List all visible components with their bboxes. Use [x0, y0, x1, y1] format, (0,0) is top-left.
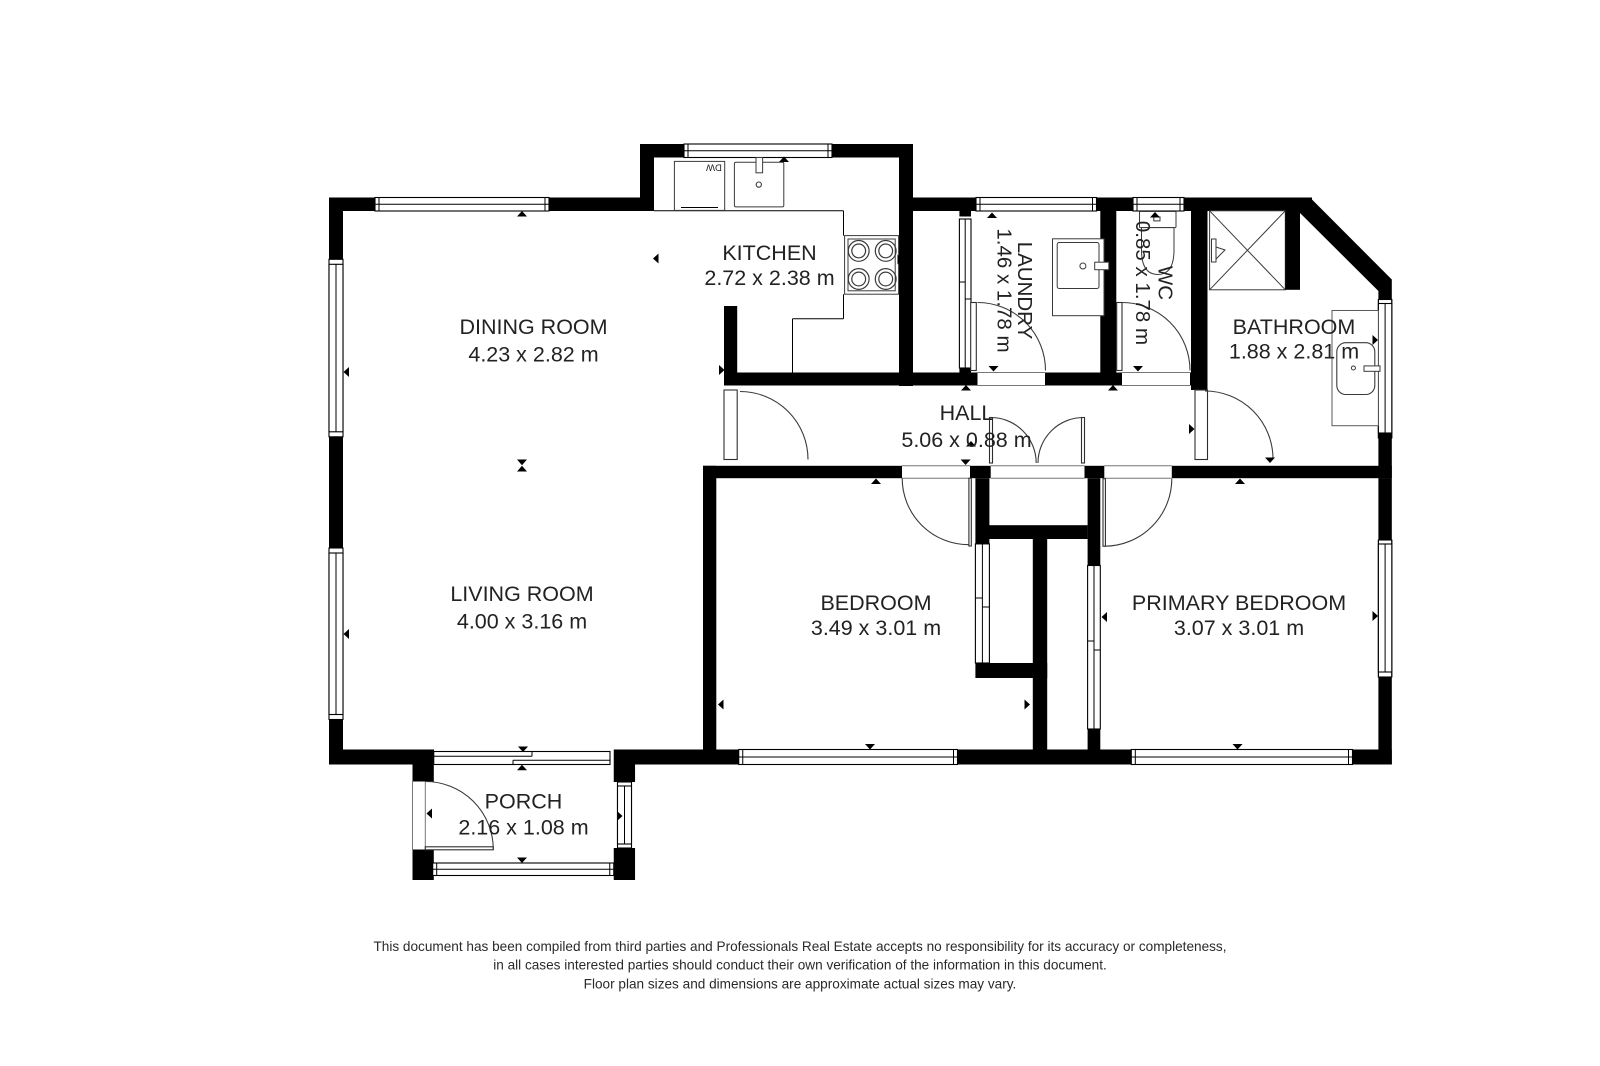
svg-text:1.88 x 2.81 m: 1.88 x 2.81 m [1229, 340, 1359, 364]
svg-text:DINING ROOM: DINING ROOM [459, 315, 607, 339]
svg-text:Floor plan sizes and dimension: Floor plan sizes and dimensions are appr… [584, 977, 1017, 992]
svg-text:3.07 x 3.01 m: 3.07 x 3.01 m [1174, 616, 1304, 640]
svg-text:PRIMARY BEDROOM: PRIMARY BEDROOM [1132, 591, 1346, 615]
svg-text:LIVING ROOM: LIVING ROOM [450, 582, 593, 606]
svg-text:This document has been compile: This document has been compiled from thi… [373, 939, 1226, 954]
svg-text:3.49 x 3.01 m: 3.49 x 3.01 m [811, 616, 941, 640]
svg-text:WC: WC [1154, 266, 1177, 300]
svg-text:BEDROOM: BEDROOM [820, 591, 931, 615]
svg-text:HALL: HALL [940, 401, 994, 425]
svg-text:PORCH: PORCH [485, 789, 563, 813]
svg-text:4.23 x 2.82 m: 4.23 x 2.82 m [468, 342, 598, 366]
svg-text:4.00 x 3.16 m: 4.00 x 3.16 m [457, 609, 587, 633]
svg-text:2.72 x 2.38 m: 2.72 x 2.38 m [704, 266, 834, 290]
svg-text:0.85 x 1.78 m: 0.85 x 1.78 m [1131, 221, 1154, 345]
svg-text:KITCHEN: KITCHEN [722, 241, 816, 265]
svg-text:5.06 x 0.88 m: 5.06 x 0.88 m [901, 428, 1031, 452]
svg-text:in all cases interested partie: in all cases interested parties should c… [493, 958, 1107, 973]
svg-text:BATHROOM: BATHROOM [1233, 315, 1356, 339]
svg-text:1.46 x 1.78 m: 1.46 x 1.78 m [993, 228, 1016, 352]
svg-text:2.16 x 1.08 m: 2.16 x 1.08 m [458, 816, 588, 840]
svg-text:DW: DW [706, 162, 722, 173]
